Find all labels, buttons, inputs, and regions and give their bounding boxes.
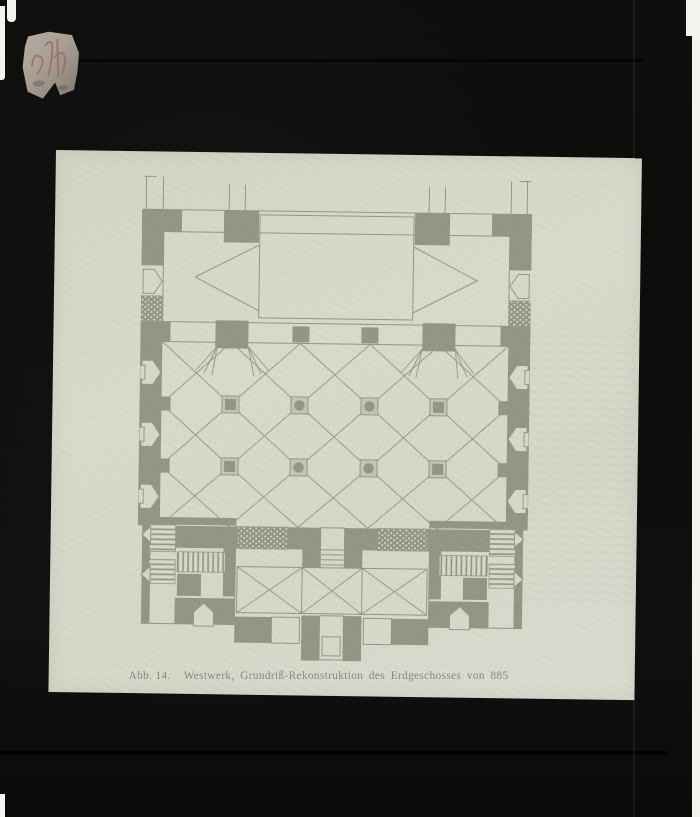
upper-hall-center [259, 215, 414, 320]
entrance-wall [159, 525, 505, 552]
figure-title: Westwerk, Grundriß-Rekonstruktion des Er… [184, 670, 509, 682]
entrance-steps [321, 555, 343, 565]
west-apse-outline [195, 244, 260, 311]
background-edge-bottom-left [0, 794, 5, 817]
hatched-masonry [509, 300, 531, 326]
east-apse-outline [413, 247, 478, 314]
lantern-slide-photograph: Abb. 14. Westwerk, Grundriß-Rekonstrukti… [0, 0, 700, 817]
vault-lattice [160, 342, 509, 531]
south-wall-and-porch [234, 615, 429, 663]
main-pier [215, 320, 248, 348]
photo-ghosting [520, 335, 636, 603]
background-edge-right [692, 0, 700, 817]
background-edge-top-left [7, 0, 16, 22]
background-edge-top-right [686, 0, 693, 36]
floor-plan-drawing [136, 173, 533, 665]
transverse-wall-lines [162, 322, 508, 347]
north-wall [142, 209, 532, 236]
wall-doorway [143, 269, 162, 293]
wall-doorway [510, 274, 529, 298]
binding-tape-seam-bottom [0, 751, 666, 755]
buttress-lines [144, 176, 531, 214]
background-edge-left [0, 6, 5, 80]
main-pier [422, 323, 455, 351]
figure-number: Abb. 14. [129, 670, 171, 682]
upper-hall [163, 232, 510, 327]
figure-caption: Abb. 14. Westwerk, Grundriß-Rekonstrukti… [129, 670, 559, 682]
binding-tape-seam-top [78, 59, 644, 62]
photo-window: Abb. 14. Westwerk, Grundriß-Rekonstrukti… [48, 150, 642, 700]
hatched-masonry [141, 295, 163, 321]
vestibule [237, 549, 428, 616]
